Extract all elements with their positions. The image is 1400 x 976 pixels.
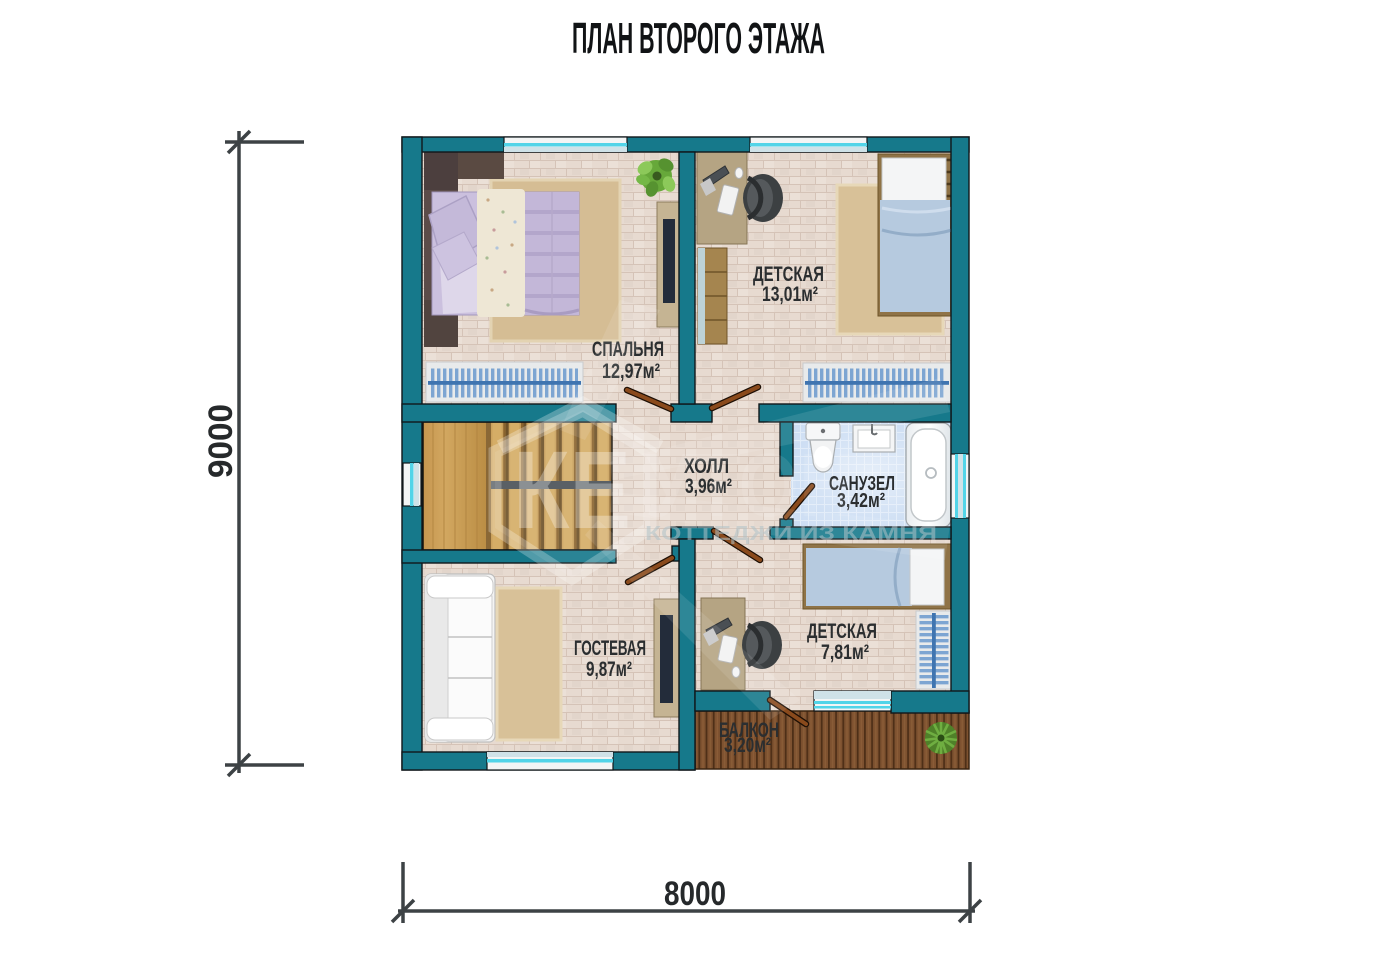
- svg-text:ДЕТСКАЯ: ДЕТСКАЯ: [807, 620, 877, 643]
- svg-text:ПЛАН ВТОРОГО ЭТАЖА: ПЛАН ВТОРОГО ЭТАЖА: [572, 14, 825, 63]
- svg-text:УТОН: УТОН: [645, 436, 855, 536]
- svg-text:7,81м²: 7,81м²: [821, 641, 869, 664]
- svg-text:9,87м²: 9,87м²: [586, 658, 632, 681]
- svg-text:3,20м²: 3,20м²: [724, 734, 771, 757]
- svg-text:8000: 8000: [664, 875, 726, 913]
- svg-text:ГОСТЕВАЯ: ГОСТЕВАЯ: [574, 637, 646, 660]
- svg-text:13,01м²: 13,01м²: [762, 283, 818, 306]
- svg-text:КЕ: КЕ: [513, 429, 631, 552]
- svg-text:КОТТЕДЖИ ИЗ КАМНЯ: КОТТЕДЖИ ИЗ КАМНЯ: [645, 523, 937, 545]
- svg-text:9000: 9000: [202, 404, 240, 478]
